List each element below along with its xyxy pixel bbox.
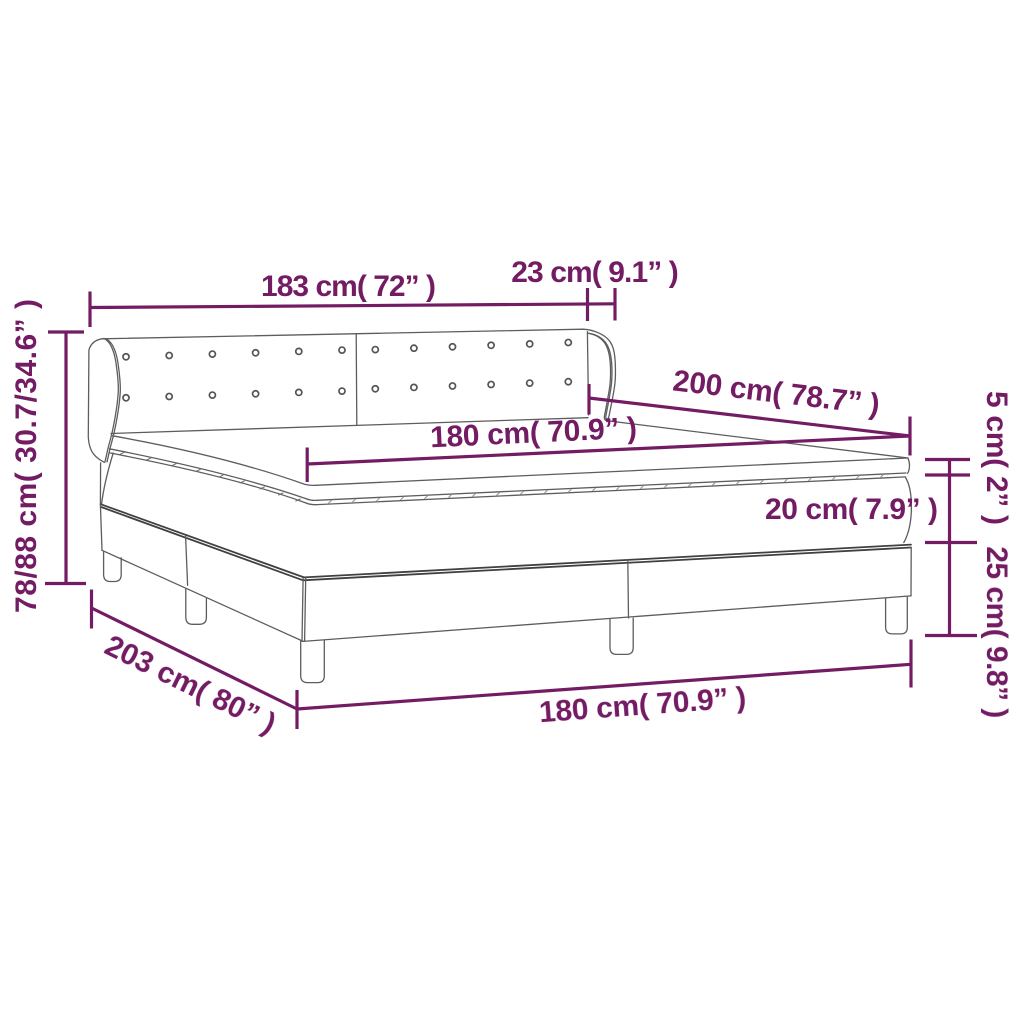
svg-text:5 cm( 2” ): 5 cm( 2” )	[980, 391, 1013, 525]
svg-text:183 cm( 72” ): 183 cm( 72” )	[261, 270, 436, 303]
svg-text:25 cm( 9.8” ): 25 cm( 9.8” )	[980, 546, 1013, 718]
svg-text:20 cm( 7.9” ): 20 cm( 7.9” )	[765, 493, 938, 526]
svg-text:23 cm( 9.1” ): 23 cm( 9.1” )	[511, 256, 679, 289]
svg-text:78/88 cm( 30.7/34.6” ): 78/88 cm( 30.7/34.6” )	[10, 299, 43, 613]
